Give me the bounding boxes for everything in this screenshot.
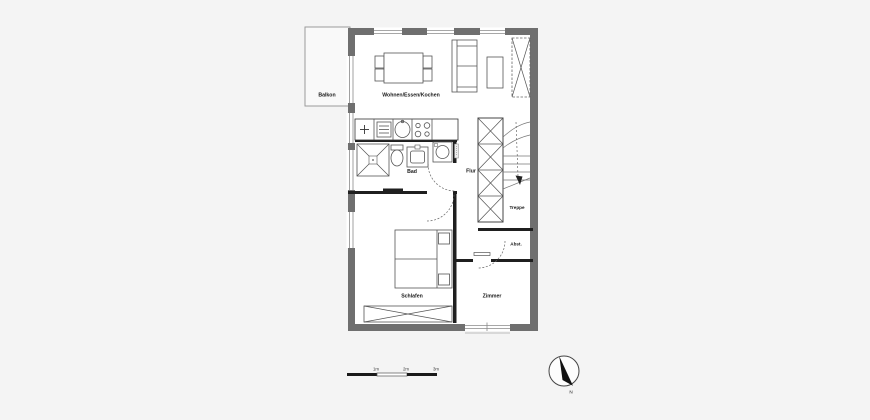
window-left-bath [347, 150, 357, 190]
floorplan-page: Balkon Wohnen/Essen/Kochen Bad Flur Trep… [0, 0, 870, 420]
bed [395, 230, 452, 288]
window-top-2 [427, 28, 454, 36]
toilet [391, 145, 403, 166]
chair [423, 56, 432, 68]
kitchen-counter [355, 119, 458, 140]
label-abst: Abst. [510, 242, 521, 247]
washbasin [407, 145, 428, 167]
scale-2m: 2m [403, 367, 409, 372]
chair [375, 56, 384, 68]
shower [357, 144, 389, 176]
shaft-column [478, 118, 503, 222]
cupboard-tall [512, 38, 530, 97]
floorplan-canvas: Balkon Wohnen/Essen/Kochen Bad Flur Trep… [0, 0, 870, 420]
chair [423, 69, 432, 81]
balcony-door [347, 56, 357, 103]
side-table [487, 57, 503, 88]
window-bottom-zimmer [465, 323, 510, 334]
dining-table [384, 53, 423, 83]
dining-set [375, 53, 432, 83]
scale-bar: 1m 2m 3m [347, 367, 439, 377]
door-tag-mark [455, 144, 459, 158]
scale-1m: 1m [373, 367, 379, 372]
label-wohnen: Wohnen/Essen/Kochen [382, 93, 440, 99]
washing-machine [433, 142, 452, 162]
north-compass: N [549, 356, 579, 395]
label-zimmer: Zimmer [483, 294, 502, 300]
storage-door-leaf [474, 253, 490, 256]
label-balkon: Balkon [318, 93, 335, 99]
window-top-3 [480, 28, 505, 36]
label-treppe: Treppe [509, 205, 525, 210]
window-top-1 [374, 28, 402, 36]
label-bad: Bad [407, 169, 417, 175]
sofa [452, 40, 477, 92]
compass-north-label: N [569, 390, 572, 395]
scale-3m: 3m [433, 367, 439, 372]
wardrobe [364, 306, 452, 322]
window-left-bedroom [347, 212, 357, 248]
chair [375, 69, 384, 81]
label-schlafen: Schlafen [401, 294, 423, 300]
label-flur: Flur [466, 169, 476, 175]
